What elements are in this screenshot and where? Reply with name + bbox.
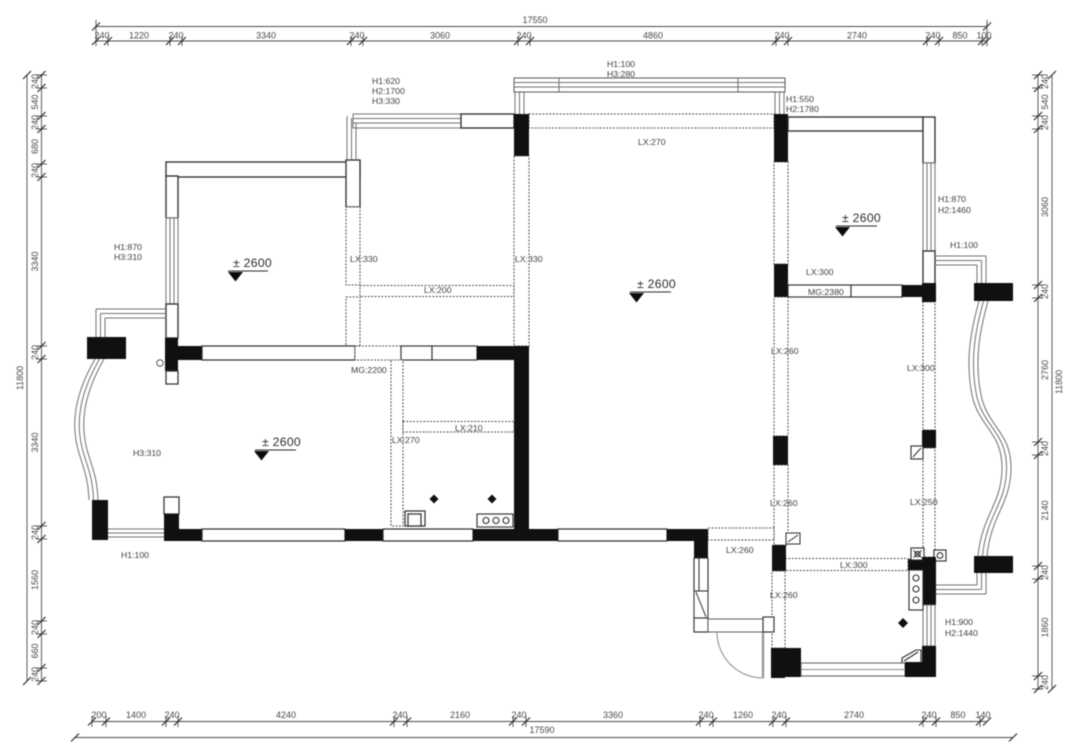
svg-text:± 2600: ± 2600 [233, 256, 272, 270]
svg-text:3340: 3340 [30, 251, 40, 271]
svg-text:H2:1700: H2:1700 [372, 86, 405, 96]
svg-text:LX:300: LX:300 [840, 560, 868, 570]
svg-text:540: 540 [30, 94, 40, 109]
svg-text:11800: 11800 [15, 366, 25, 390]
svg-text:H2:1780: H2:1780 [786, 104, 819, 114]
svg-text:240: 240 [1040, 115, 1050, 130]
svg-text:3060: 3060 [430, 31, 450, 41]
svg-text:4240: 4240 [276, 710, 296, 720]
svg-text:LX:260: LX:260 [771, 346, 799, 356]
svg-text:240: 240 [94, 31, 109, 41]
svg-text:240: 240 [925, 31, 940, 41]
svg-text:240: 240 [1040, 441, 1050, 456]
svg-text:H3:310: H3:310 [133, 448, 161, 458]
svg-text:H3:310: H3:310 [114, 252, 142, 262]
svg-text:11800: 11800 [1054, 370, 1064, 394]
svg-text:3340: 3340 [30, 432, 40, 452]
svg-text:H1:550: H1:550 [786, 94, 814, 104]
svg-text:240: 240 [392, 710, 407, 720]
svg-text:H1:100: H1:100 [121, 550, 149, 560]
svg-text:H1:870: H1:870 [938, 194, 966, 204]
svg-text:2140: 2140 [1040, 500, 1050, 520]
svg-text:200: 200 [91, 710, 106, 720]
svg-text:240: 240 [164, 710, 179, 720]
svg-text:3060: 3060 [1040, 197, 1050, 217]
svg-text:240: 240 [1040, 675, 1050, 690]
svg-text:2740: 2740 [844, 710, 864, 720]
svg-text:240: 240 [1040, 284, 1050, 299]
svg-text:240: 240 [349, 31, 364, 41]
svg-text:1560: 1560 [30, 570, 40, 590]
svg-text:240: 240 [698, 710, 713, 720]
svg-text:240: 240 [774, 31, 789, 41]
svg-text:4860: 4860 [643, 31, 663, 41]
svg-text:100: 100 [976, 31, 991, 41]
svg-text:H3:330: H3:330 [372, 96, 400, 106]
svg-text:LX:300: LX:300 [806, 267, 834, 277]
svg-text:240: 240 [771, 710, 786, 720]
svg-text:240: 240 [30, 667, 40, 682]
svg-text:240: 240 [1040, 565, 1050, 580]
svg-text:17550: 17550 [522, 15, 547, 25]
svg-text:540: 540 [1040, 94, 1050, 109]
svg-text:660: 660 [30, 643, 40, 658]
svg-text:LX:270: LX:270 [392, 435, 420, 445]
svg-text:± 2600: ± 2600 [262, 435, 301, 449]
svg-text:240: 240 [921, 710, 936, 720]
svg-text:LX:260: LX:260 [770, 590, 798, 600]
svg-text:240: 240 [30, 620, 40, 635]
svg-text:240: 240 [511, 710, 526, 720]
svg-text:1860: 1860 [1040, 617, 1050, 637]
svg-text:MG:2380: MG:2380 [808, 287, 844, 297]
svg-text:240: 240 [30, 525, 40, 540]
svg-text:240: 240 [516, 31, 531, 41]
svg-text:2740: 2740 [847, 31, 867, 41]
svg-text:H1:100: H1:100 [950, 240, 978, 250]
svg-text:LX:260: LX:260 [726, 545, 754, 555]
svg-text:H1:100: H1:100 [607, 59, 635, 69]
svg-text:LX:300: LX:300 [907, 363, 935, 373]
svg-text:H2:1440: H2:1440 [945, 628, 978, 638]
svg-text:LX:250: LX:250 [910, 497, 938, 507]
svg-text:LX:330: LX:330 [515, 254, 543, 264]
svg-text:MG:2200: MG:2200 [351, 365, 387, 375]
svg-text:3340: 3340 [256, 31, 276, 41]
svg-text:LX:210: LX:210 [455, 423, 483, 433]
svg-text:240: 240 [30, 74, 40, 89]
svg-text:H2:1460: H2:1460 [938, 205, 971, 215]
svg-text:H3:280: H3:280 [607, 69, 635, 79]
svg-text:140: 140 [975, 710, 990, 720]
svg-text:H1:870: H1:870 [114, 242, 142, 252]
svg-text:3360: 3360 [603, 710, 623, 720]
svg-text:± 2600: ± 2600 [637, 277, 676, 291]
svg-text:± 2600: ± 2600 [842, 211, 881, 225]
svg-text:17590: 17590 [529, 725, 554, 735]
svg-text:1220: 1220 [129, 31, 149, 41]
svg-text:240: 240 [30, 115, 40, 130]
svg-text:680: 680 [30, 139, 40, 154]
svg-text:240: 240 [1040, 74, 1050, 89]
svg-text:240: 240 [30, 345, 40, 360]
svg-text:LX:200: LX:200 [424, 285, 452, 295]
svg-text:2160: 2160 [450, 710, 470, 720]
svg-text:H1:900: H1:900 [945, 617, 973, 627]
svg-text:1260: 1260 [733, 710, 753, 720]
svg-text:LX:270: LX:270 [638, 137, 666, 147]
svg-text:850: 850 [950, 710, 965, 720]
svg-text:H1:620: H1:620 [372, 76, 400, 86]
svg-text:240: 240 [30, 163, 40, 178]
svg-text:2760: 2760 [1040, 360, 1050, 380]
svg-text:240: 240 [168, 31, 183, 41]
svg-text:850: 850 [952, 31, 967, 41]
svg-text:1400: 1400 [126, 710, 146, 720]
svg-text:LX:330: LX:330 [350, 254, 378, 264]
svg-text:LX:260: LX:260 [770, 498, 798, 508]
